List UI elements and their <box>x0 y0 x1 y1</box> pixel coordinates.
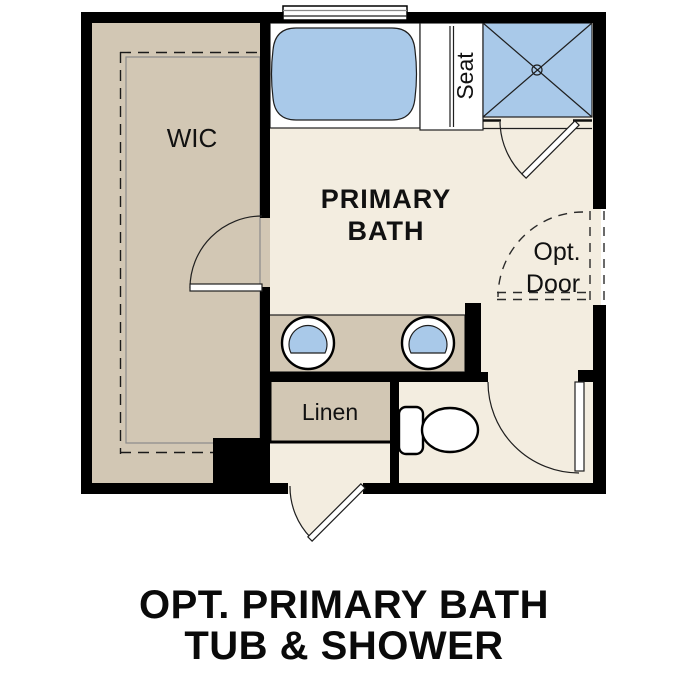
tub-area <box>270 23 420 128</box>
caption: OPT. PRIMARY BATH TUB & SHOWER <box>139 583 549 668</box>
wic-room <box>92 23 270 484</box>
toilet-bowl <box>422 408 478 452</box>
wall-bottom-right <box>363 483 606 494</box>
wic-door-leaf <box>190 284 262 291</box>
opt-door-label-line2: Door <box>526 270 580 298</box>
window <box>283 6 407 20</box>
linen-closet: Linen <box>270 380 392 442</box>
floor-plan-page: Seat Linen <box>0 0 687 687</box>
primary-bath-label-line2: BATH <box>348 216 425 246</box>
floor-plan-drawing: Seat Linen <box>0 0 687 687</box>
seat-label: Seat <box>452 52 478 100</box>
vanity <box>267 315 465 372</box>
wall-right-upper <box>593 12 606 209</box>
window-frame <box>283 6 407 20</box>
toilet-door-leaf <box>575 382 584 471</box>
toilet-tank <box>399 407 423 454</box>
wall-right-lower <box>593 305 606 494</box>
wall-toilet-left <box>390 372 399 483</box>
entry-door <box>288 481 365 541</box>
linen-label: Linen <box>302 399 358 425</box>
toilet <box>399 407 478 454</box>
wic-label: WIC <box>167 123 218 153</box>
sink-left <box>282 317 334 369</box>
caption-line1: OPT. PRIMARY BATH <box>139 583 549 627</box>
wall-wic-corner-block <box>213 438 270 494</box>
wic-carpet-border <box>92 23 270 484</box>
wall-vanity-right <box>465 303 481 382</box>
wall-left <box>81 12 92 494</box>
opt-door-label-line1: Opt. <box>533 238 580 266</box>
wall-toilet-stub <box>578 370 593 382</box>
shower <box>483 23 592 129</box>
caption-line2: TUB & SHOWER <box>184 624 503 668</box>
bathtub <box>272 28 417 120</box>
wall-wic-lower <box>260 287 270 438</box>
wall-wic-upper <box>260 23 270 218</box>
wall-below-vanity <box>260 372 488 382</box>
primary-bath-label-line1: PRIMARY <box>321 184 452 214</box>
shower-seat: Seat <box>420 23 483 130</box>
sink-right <box>402 317 454 369</box>
